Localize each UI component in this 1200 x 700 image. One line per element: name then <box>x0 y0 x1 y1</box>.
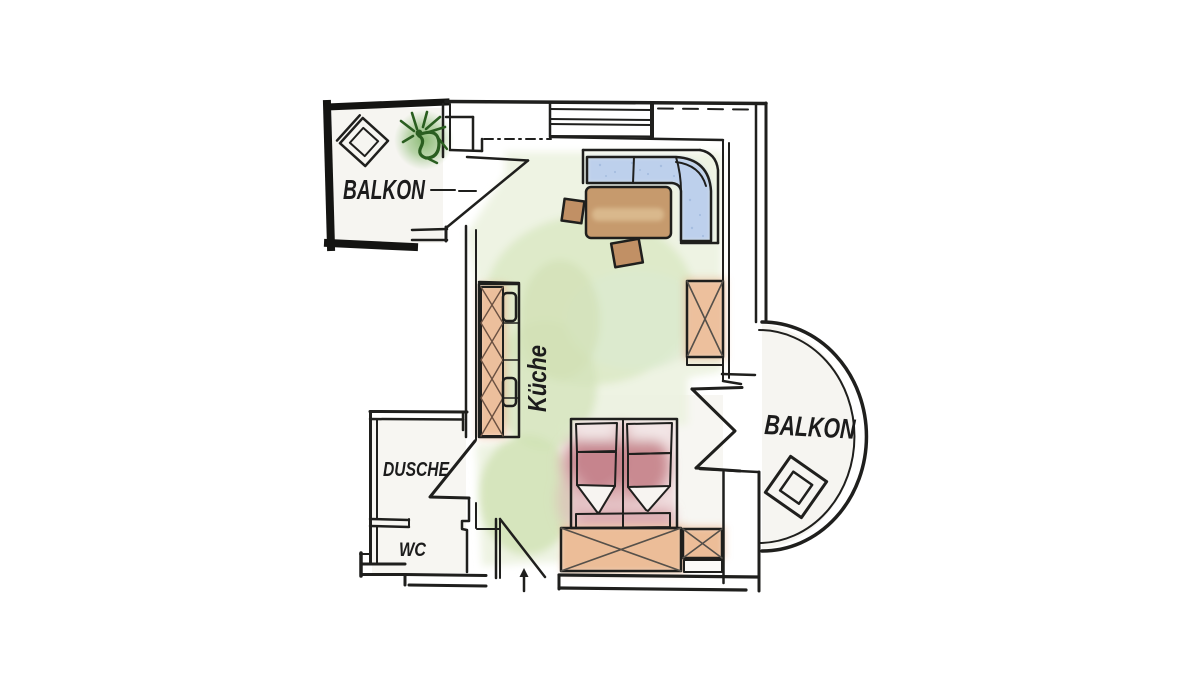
svg-text:Küche: Küche <box>522 345 552 412</box>
svg-text:WC: WC <box>399 540 426 561</box>
svg-text:BALKON: BALKON <box>343 174 426 205</box>
svg-text:DUSCHE: DUSCHE <box>383 459 450 481</box>
svg-text:BALKON: BALKON <box>764 409 857 445</box>
